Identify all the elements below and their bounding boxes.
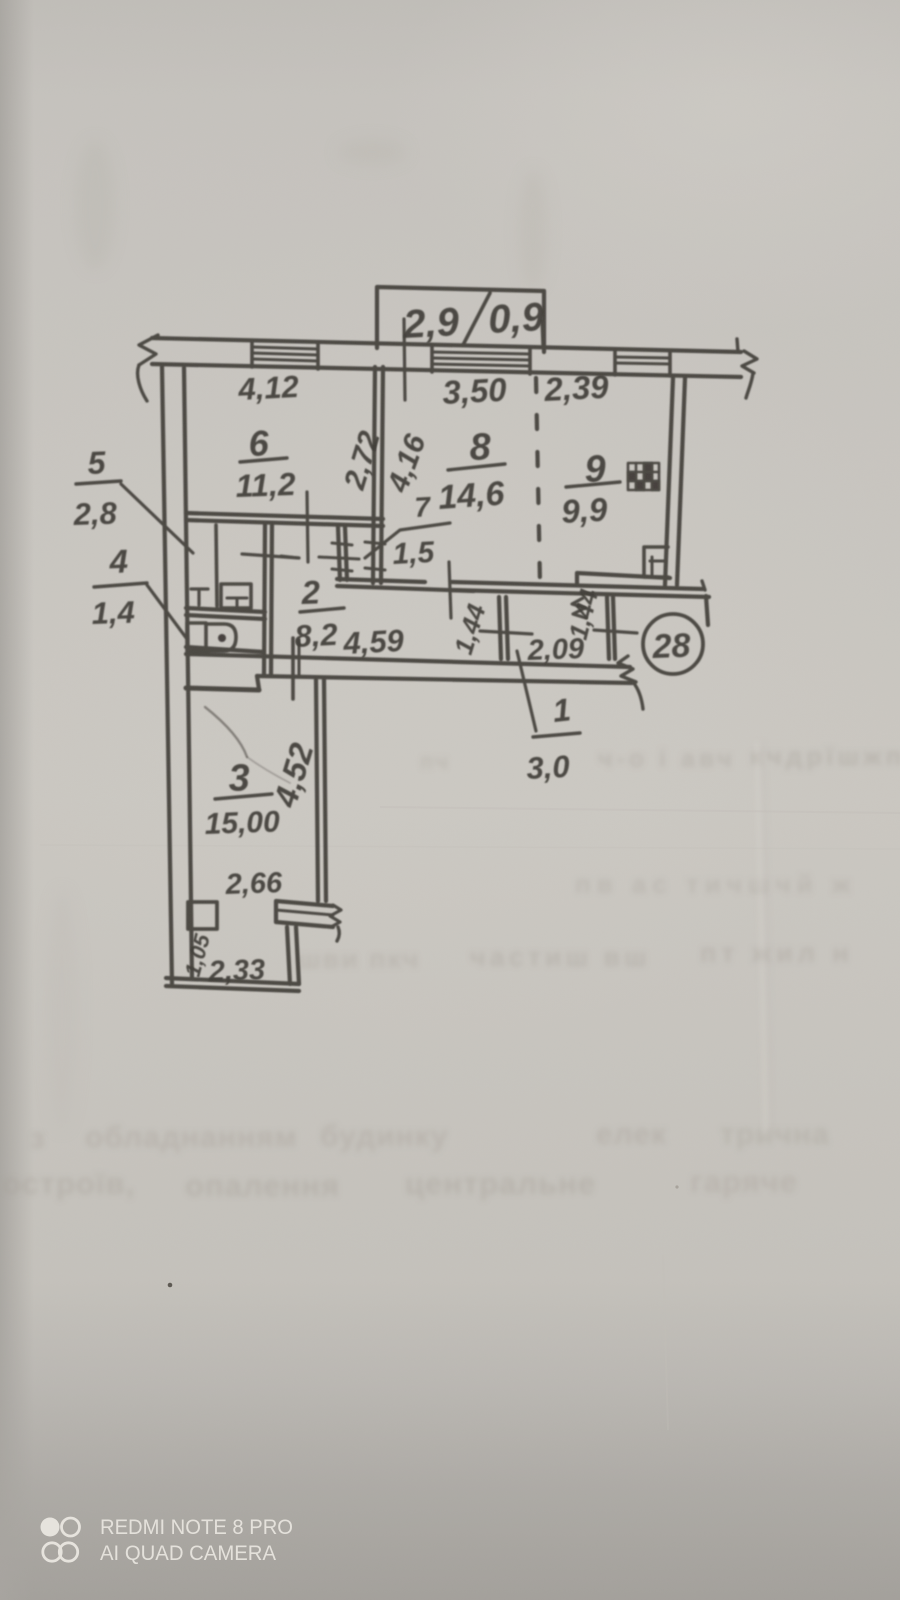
svg-text:REDMI NOTE 8 PRO: REDMI NOTE 8 PRO: [100, 1515, 293, 1539]
svg-text:AI QUAD CAMERA: AI QUAD CAMERA: [100, 1541, 277, 1565]
